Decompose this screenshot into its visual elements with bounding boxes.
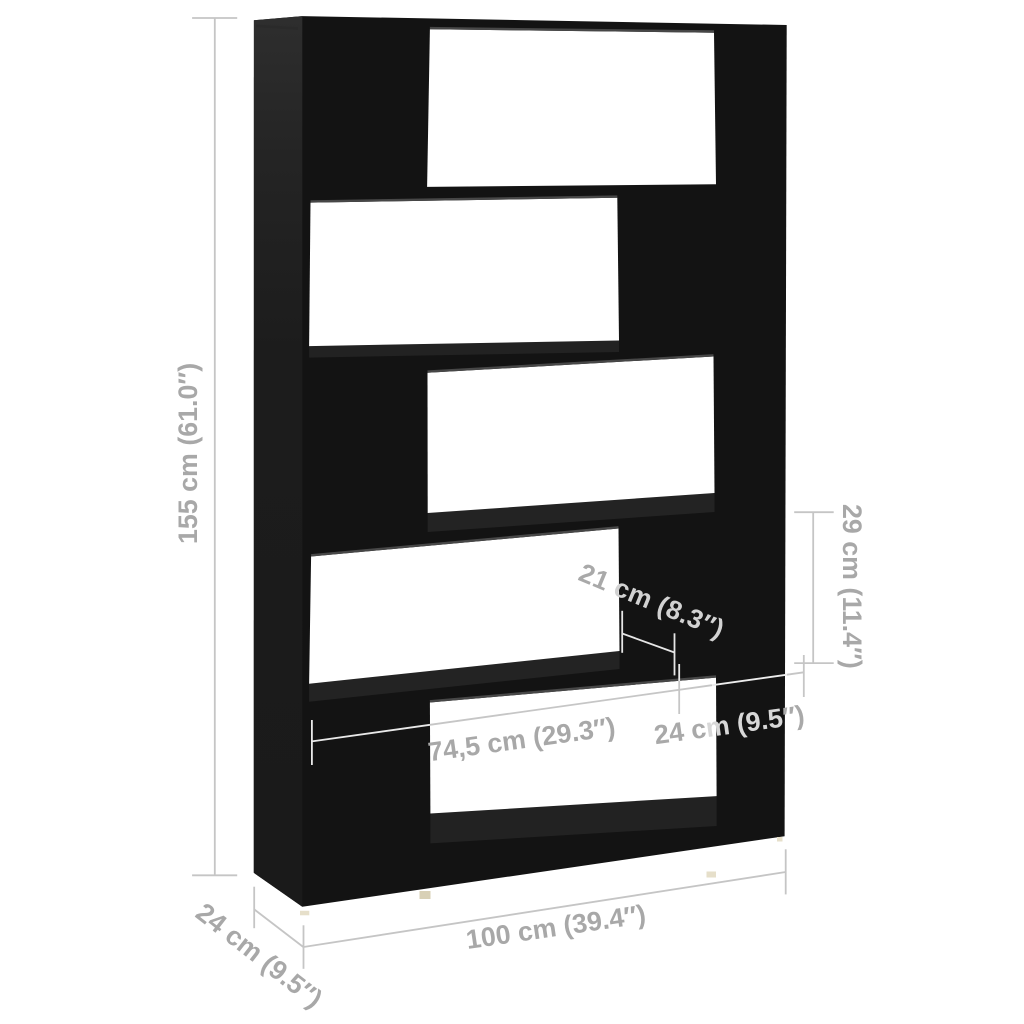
svg-text:29 cm (11.4″): 29 cm (11.4″) xyxy=(837,504,867,669)
svg-text:155 cm (61.0″): 155 cm (61.0″) xyxy=(173,363,203,544)
